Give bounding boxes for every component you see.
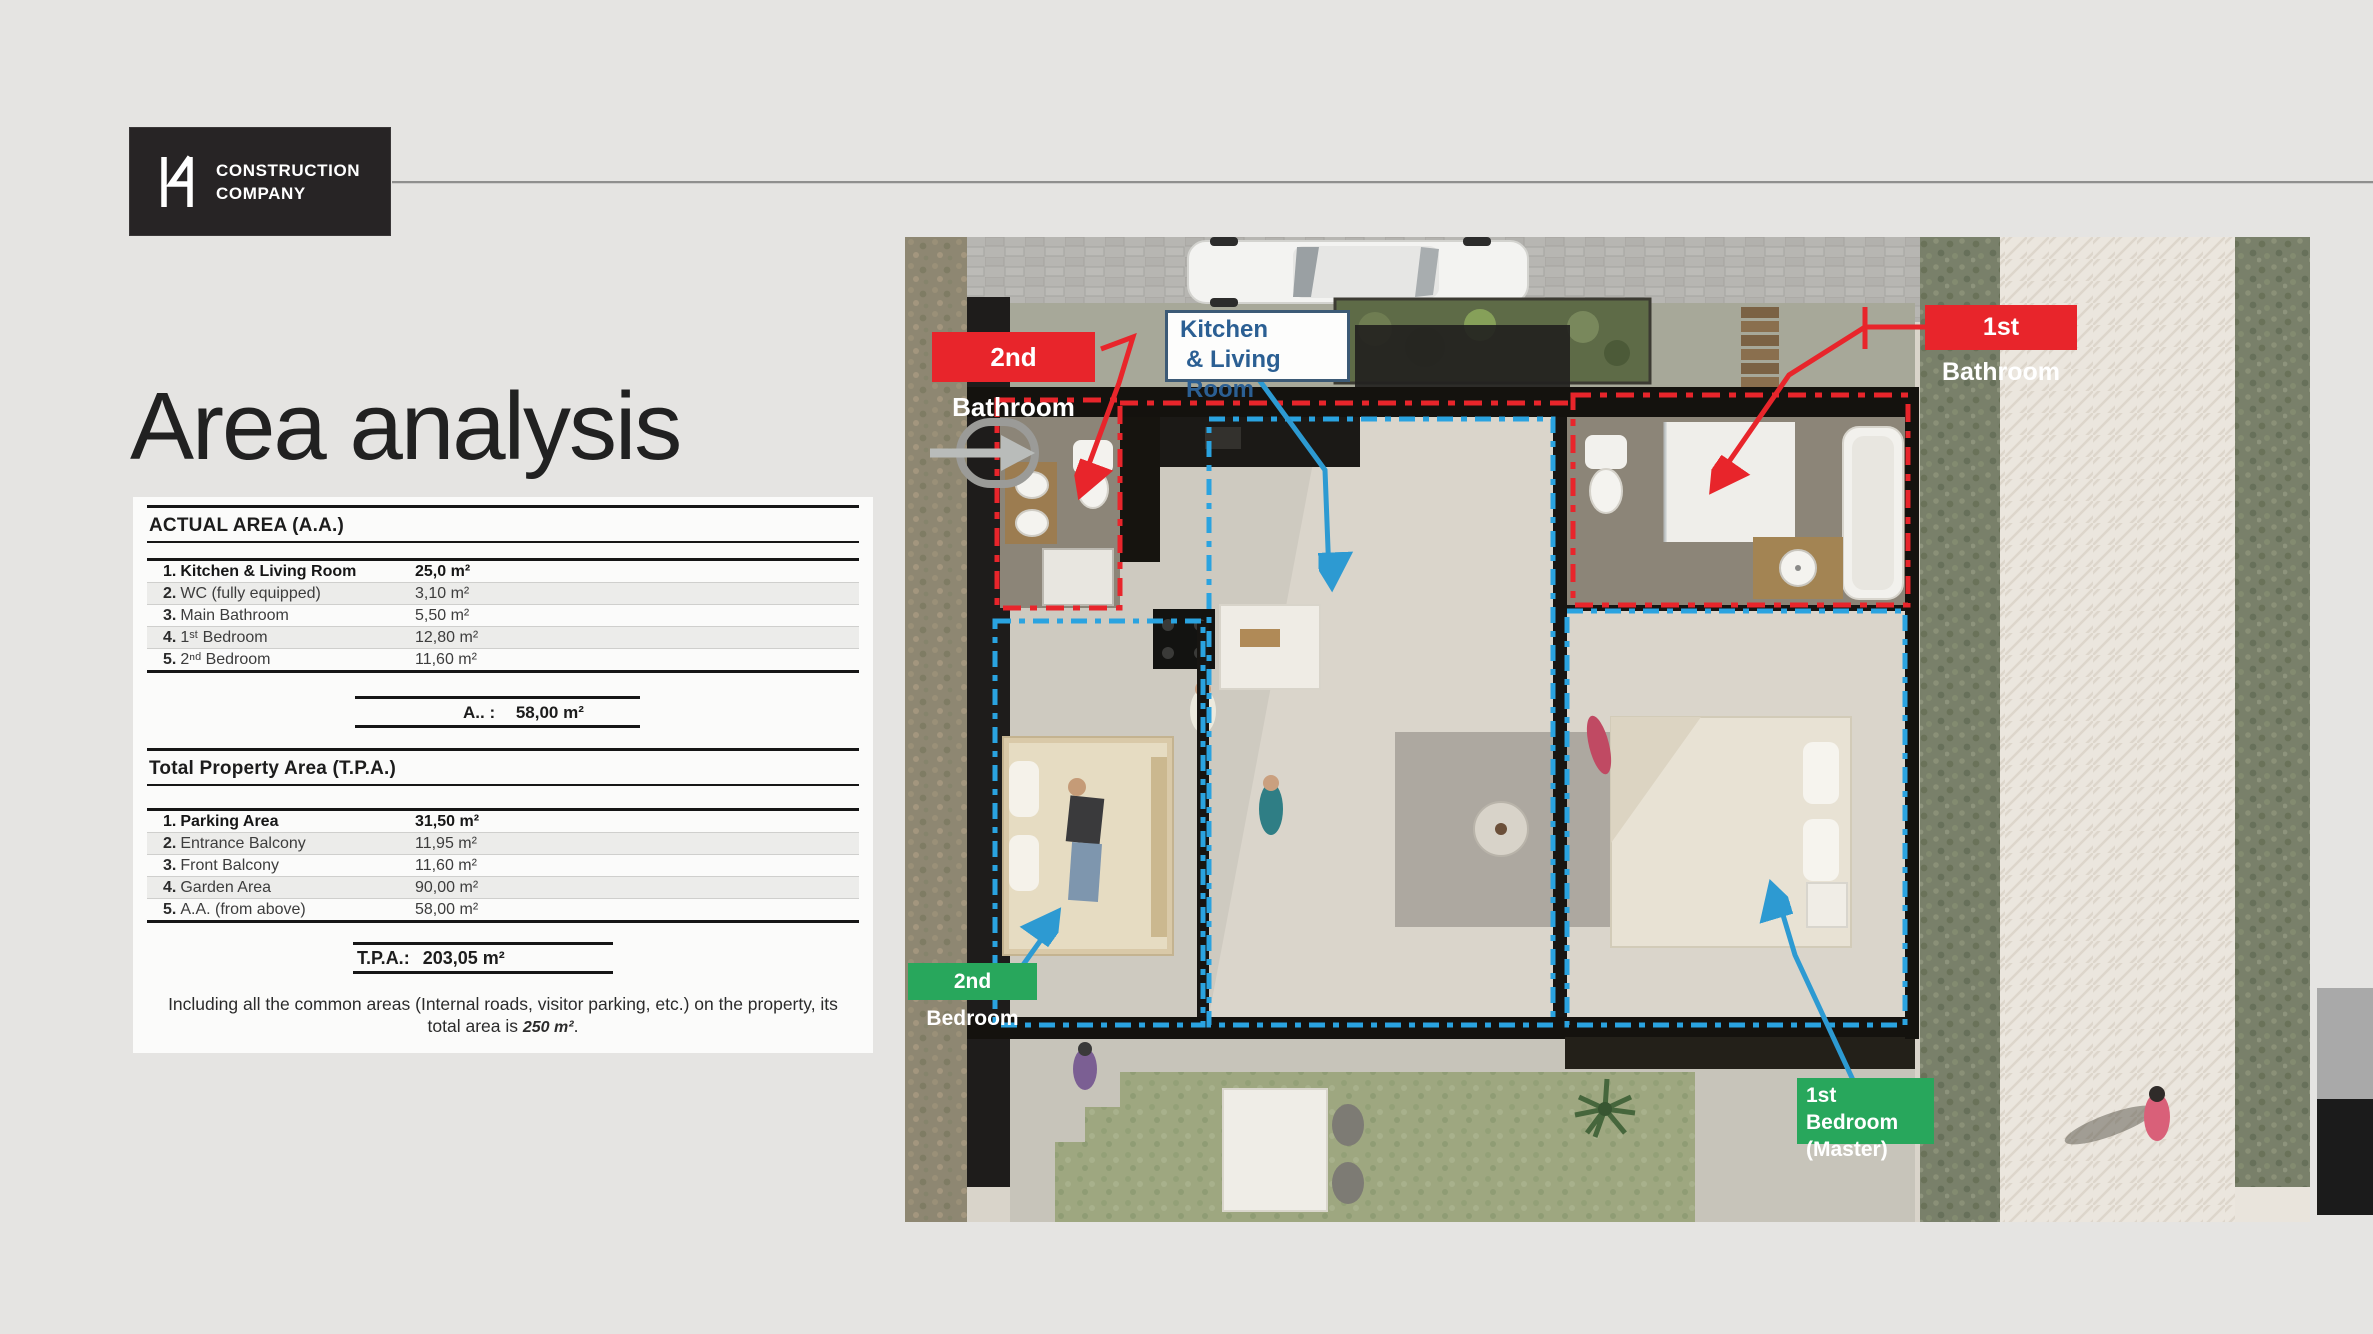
floor-plan-scene [905,237,2310,1222]
logo-line1: CONSTRUCTION [216,159,360,182]
actual-area-heading: ACTUAL AREA (A.A.) [147,505,859,543]
table-row: 2.WC (fully equipped)3,10 m² [147,583,859,605]
house-bottom-wall [967,1017,1915,1039]
tpa-table: 1.Parking Area31,50 m² 2.Entrance Balcon… [147,808,859,923]
table-row: 5.2ⁿᵈ Bedroom11,60 m² [147,649,859,670]
kitchen-living-label: Kitchen & Living Room [1165,310,1350,382]
header-divider-line [392,181,2373,184]
common-areas-note: Including all the common areas (Internal… [153,993,853,1039]
logo-monogram-icon [156,153,198,211]
table-row: 1.Kitchen & Living Room25,0 m² [147,561,859,583]
tpa-total: T.P.A.: 203,05 m² [353,942,613,974]
actual-area-total: A.. : 58,00 m² [355,696,640,728]
table-row: 3.Front Balcony11,60 m² [147,855,859,877]
logo-text: CONSTRUCTION COMPANY [216,159,360,205]
second-bathroom-label: 2nd Bathroom [932,332,1095,382]
table-row: 4.1ˢᵗ Bedroom12,80 m² [147,627,859,649]
first-bathroom-label: 1st Bathroom [1925,305,2077,350]
house-right-wall [1905,387,1919,1039]
table-row: 1.Parking Area31,50 m² [147,811,859,833]
second-bedroom-label: 2nd Bedroom [908,963,1037,1000]
parked-car [1188,237,1528,307]
first-bathroom-fixtures [1567,417,1905,605]
garden-grass [1055,1072,1695,1222]
edge-decoration-gray [2317,988,2373,1099]
area-tables-panel: ACTUAL AREA (A.A.) 1.Kitchen & Living Ro… [133,497,873,1053]
table-row: 2.Entrance Balcony11,95 m² [147,833,859,855]
table-row: 5.A.A. (from above)58,00 m² [147,899,859,920]
page-title: Area analysis [130,372,680,482]
presentation-slide: CONSTRUCTION COMPANY Area analysis ACTUA… [0,0,2373,1334]
actual-area-table: 1.Kitchen & Living Room25,0 m² 2.WC (ful… [147,558,859,673]
tpa-heading: Total Property Area (T.P.A.) [147,748,859,786]
logo-line2: COMPANY [216,182,360,205]
master-bedroom-bed [1582,713,1851,947]
table-row: 4.Garden Area90,00 m² [147,877,859,899]
table-row: 3.Main Bathroom5,50 m² [147,605,859,627]
master-bedroom-label: 1st Bedroom (Master) [1797,1078,1934,1144]
second-bedroom-bed [1003,737,1173,955]
edge-decoration-black [2317,1099,2373,1215]
company-logo: CONSTRUCTION COMPANY [130,128,390,235]
hedge-strip-right [2235,237,2310,1187]
deck-edge [1565,1037,1915,1069]
floor-plan-image: 2nd Bathroom Kitchen & Living Room 1st B… [905,237,2310,1222]
path-corner [2235,1187,2310,1222]
